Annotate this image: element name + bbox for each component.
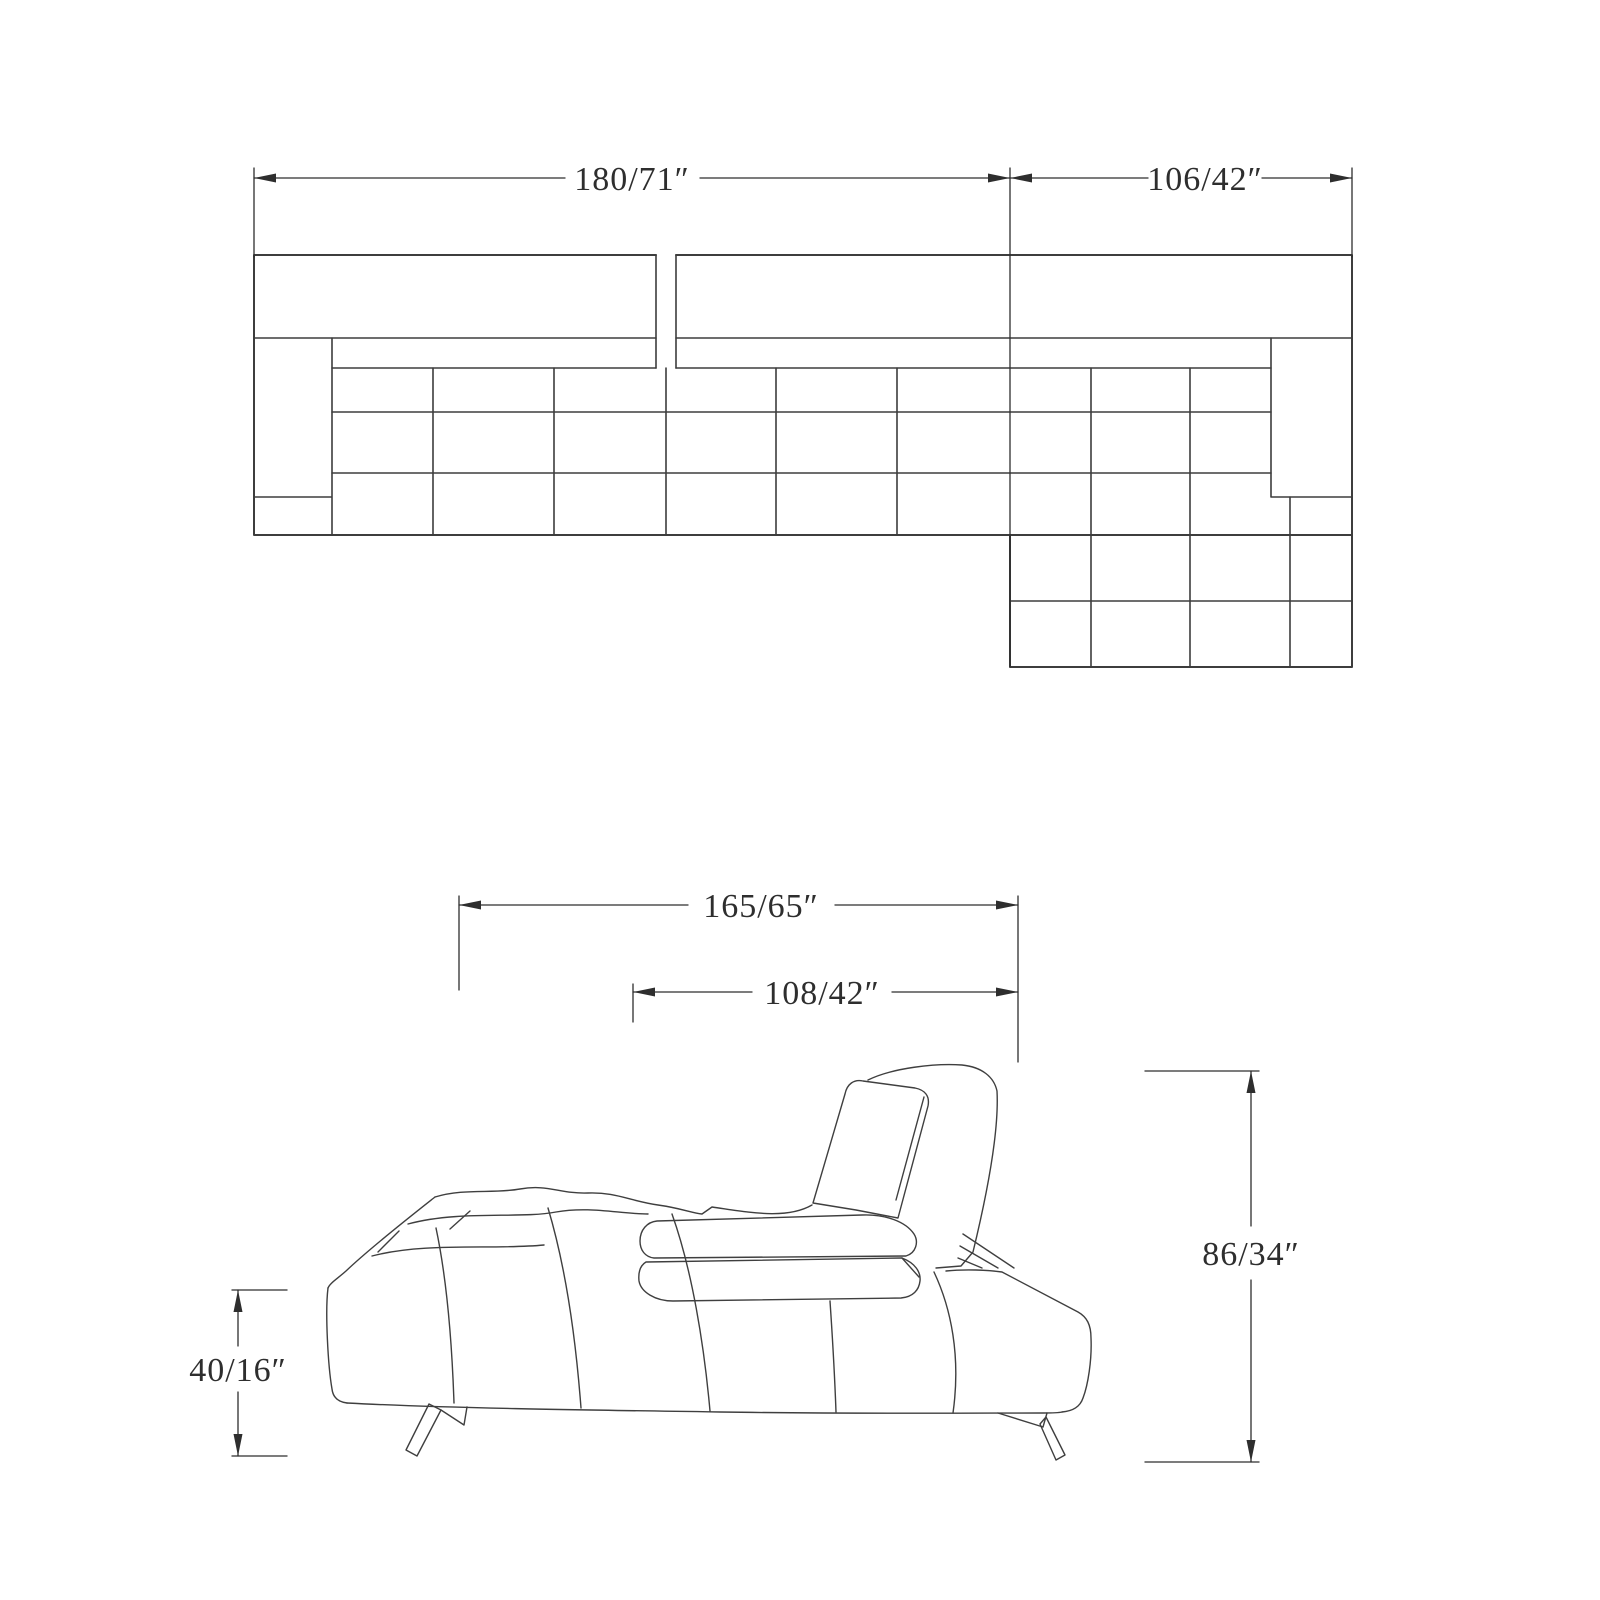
back-cushion-far	[868, 1065, 997, 1268]
arrow-left-icon	[1010, 174, 1032, 183]
seat-back-seam	[934, 1272, 956, 1413]
seat-seam-4	[830, 1301, 836, 1412]
side-view-dimensions: 165/65″ 108/42″ 86/34″ 40/16″	[189, 888, 1300, 1462]
armrest-pillow-top	[640, 1215, 916, 1258]
back-fan-seam-3	[958, 1258, 982, 1268]
back-cushion-near	[813, 1081, 928, 1218]
dim-label-chaise-width: 106/42″	[1147, 161, 1263, 198]
dim-label-seat-depth: 108/42″	[764, 975, 880, 1012]
top-view-dimensions: 180/71″ 106/42″	[254, 161, 1352, 667]
dim-label-total-width: 180/71″	[574, 161, 690, 198]
dim-label-overall-depth: 165/65″	[703, 888, 819, 925]
plan-dimension-labels: 180/71″ 106/42″	[574, 161, 1263, 198]
dim-label-seat-height: 40/16″	[189, 1352, 287, 1389]
seat-seam-3	[672, 1214, 710, 1411]
side-dimension-lines	[232, 896, 1259, 1462]
seat-column-lines	[433, 368, 897, 535]
right-armrest	[1271, 338, 1352, 497]
back-fan-seam-2	[960, 1246, 998, 1268]
plan-dimension-lines	[254, 168, 1352, 667]
tuft-pinch-2	[450, 1211, 470, 1229]
arrow-up-icon	[1247, 1071, 1256, 1093]
tuft-row-2	[372, 1245, 544, 1256]
front-leg	[406, 1404, 441, 1456]
arrow-up-icon	[234, 1290, 243, 1312]
arrow-down-icon	[1247, 1440, 1256, 1462]
side-view: 165/65″ 108/42″ 86/34″ 40/16″	[189, 888, 1300, 1462]
back-seam-double-line	[656, 255, 676, 368]
arrow-right-icon	[996, 988, 1018, 997]
seat-front-edge	[327, 1288, 347, 1403]
arrow-right-icon	[1330, 174, 1352, 183]
arrow-left-icon	[633, 988, 655, 997]
top-view: 180/71″ 106/42″	[254, 161, 1352, 667]
side-dimension-labels: 165/65″ 108/42″ 86/34″ 40/16″	[189, 888, 1300, 1389]
plan-cushion-grid	[254, 255, 1352, 667]
tuft-row-1	[408, 1210, 648, 1224]
dim-label-overall-height: 86/34″	[1202, 1236, 1300, 1273]
arrow-left-icon	[254, 174, 276, 183]
arrow-left-icon	[459, 901, 481, 910]
arrow-right-icon	[996, 901, 1018, 910]
side-sofa-drawing	[327, 1065, 1091, 1460]
front-leg-bracket	[441, 1407, 467, 1425]
back-cushion-seam	[896, 1097, 924, 1200]
seat-top-edge	[435, 1188, 812, 1214]
side-dimension-arrows	[234, 901, 1256, 1463]
sofa-dimension-drawing: 180/71″ 106/42″	[0, 0, 1600, 1600]
arrow-down-icon	[234, 1434, 243, 1456]
arrow-right-icon	[988, 174, 1010, 183]
plan-outline	[254, 255, 1352, 667]
plan-outer-boundary	[254, 255, 1352, 667]
chaise-column-lines	[1091, 368, 1290, 667]
armrest-pillow-bottom	[639, 1258, 920, 1301]
seat-seam-2	[548, 1208, 581, 1408]
back-right-silhouette	[946, 1270, 1091, 1412]
seat-seam-1	[436, 1228, 454, 1403]
seat-left-slope	[328, 1197, 435, 1288]
left-armrest	[254, 338, 332, 535]
spec-sheet-page: 180/71″ 106/42″	[0, 0, 1600, 1600]
